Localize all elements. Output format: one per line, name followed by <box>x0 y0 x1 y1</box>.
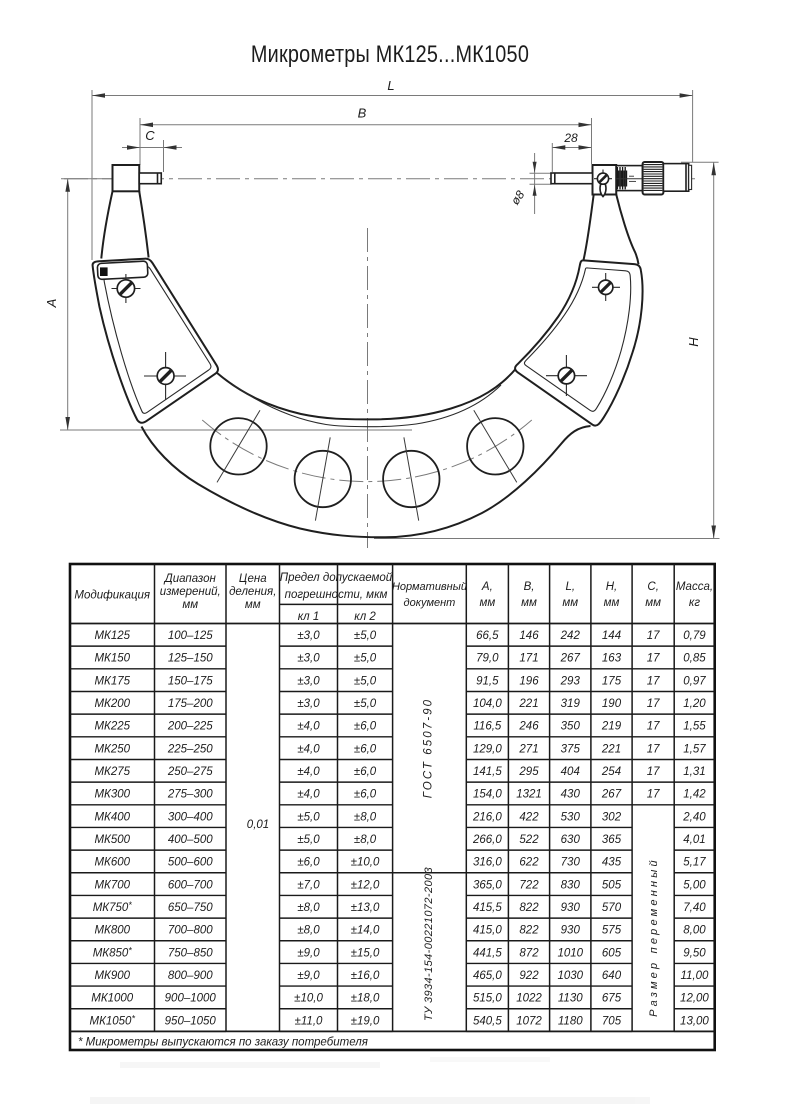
svg-text:МК600: МК600 <box>94 857 130 869</box>
svg-text:293: 293 <box>560 675 581 687</box>
svg-text:930: 930 <box>561 902 581 914</box>
svg-text:5,00: 5,00 <box>683 879 706 891</box>
svg-text:435: 435 <box>602 857 622 869</box>
svg-text:±6,0: ±6,0 <box>297 857 320 869</box>
svg-text:кг: кг <box>689 597 700 609</box>
svg-text:1,55: 1,55 <box>683 721 706 733</box>
svg-text:±6,0: ±6,0 <box>354 721 377 733</box>
svg-text:515,0: 515,0 <box>473 993 502 1005</box>
svg-text:129,0: 129,0 <box>473 743 502 755</box>
svg-text:измерений,: измерений, <box>160 586 221 598</box>
svg-text:МК275: МК275 <box>94 766 130 778</box>
svg-text:116,5: 116,5 <box>473 721 502 733</box>
svg-text:1,57: 1,57 <box>683 743 706 755</box>
svg-text:302: 302 <box>602 811 622 823</box>
svg-text:430: 430 <box>561 789 581 801</box>
svg-text:L: L <box>387 78 394 93</box>
svg-text:822: 822 <box>519 925 539 937</box>
svg-text:±5,0: ±5,0 <box>297 834 320 846</box>
svg-text:Нормативный: Нормативный <box>392 581 467 593</box>
svg-text:МК125: МК125 <box>94 630 130 642</box>
svg-text:225–250: 225–250 <box>167 743 213 755</box>
svg-text:17: 17 <box>647 698 660 710</box>
svg-text:100–125: 100–125 <box>168 630 213 642</box>
svg-text:622: 622 <box>519 857 539 869</box>
svg-text:1,20: 1,20 <box>683 698 706 710</box>
svg-text:L,: L, <box>565 581 575 593</box>
svg-text:±4,0: ±4,0 <box>297 766 320 778</box>
svg-text:±5,0: ±5,0 <box>354 630 377 642</box>
svg-text:415,5: 415,5 <box>473 902 502 914</box>
svg-text:500–600: 500–600 <box>168 857 213 869</box>
svg-text:±6,0: ±6,0 <box>354 766 377 778</box>
svg-text:МК225: МК225 <box>94 721 130 733</box>
svg-text:мм: мм <box>521 597 537 609</box>
svg-text:17: 17 <box>647 721 660 733</box>
svg-text:±3,0: ±3,0 <box>297 698 320 710</box>
svg-text:540,5: 540,5 <box>473 1015 502 1027</box>
svg-text:±12,0: ±12,0 <box>351 879 380 891</box>
svg-text:700–800: 700–800 <box>168 925 213 937</box>
svg-text:242: 242 <box>560 630 581 642</box>
svg-text:A: A <box>44 299 59 309</box>
svg-text:154,0: 154,0 <box>473 789 502 801</box>
svg-text:275–300: 275–300 <box>167 789 213 801</box>
svg-text:316,0: 316,0 <box>473 857 502 869</box>
svg-text:деления,: деления, <box>229 586 276 598</box>
svg-text:319: 319 <box>561 698 581 710</box>
svg-text:1,42: 1,42 <box>683 789 706 801</box>
svg-text:H: H <box>686 337 701 347</box>
svg-text:150–175: 150–175 <box>168 675 213 687</box>
svg-text:640: 640 <box>602 970 622 982</box>
svg-text:922: 922 <box>519 970 539 982</box>
svg-text:17: 17 <box>647 789 660 801</box>
svg-text:мм: мм <box>645 597 661 609</box>
svg-text:872: 872 <box>519 947 539 959</box>
svg-text:271: 271 <box>518 743 538 755</box>
svg-text:254: 254 <box>601 766 621 778</box>
svg-text:Предел допускаемой: Предел допускаемой <box>280 572 393 584</box>
svg-text:17: 17 <box>647 766 660 778</box>
svg-text:7,40: 7,40 <box>683 902 706 914</box>
svg-text:±8,0: ±8,0 <box>354 834 377 846</box>
svg-text:730: 730 <box>561 857 581 869</box>
svg-text:±11,0: ±11,0 <box>295 1015 323 1027</box>
svg-text:±16,0: ±16,0 <box>351 970 380 982</box>
svg-text:1321: 1321 <box>516 789 542 801</box>
svg-text:МК175: МК175 <box>94 675 130 687</box>
svg-text:422: 422 <box>519 811 539 823</box>
svg-text:ТУ 3934-154-00221072-2003: ТУ 3934-154-00221072-2003 <box>423 867 435 1022</box>
svg-text:±6,0: ±6,0 <box>354 789 377 801</box>
svg-text:C: C <box>145 128 155 143</box>
svg-text:±3,0: ±3,0 <box>297 653 320 665</box>
svg-text:465,0: 465,0 <box>473 970 502 982</box>
svg-text:950–1050: 950–1050 <box>165 1015 217 1027</box>
svg-text:8,00: 8,00 <box>683 925 706 937</box>
svg-text:295: 295 <box>518 766 539 778</box>
svg-text:±19,0: ±19,0 <box>351 1015 380 1027</box>
svg-text:±8,0: ±8,0 <box>297 902 320 914</box>
svg-text:МК200: МК200 <box>94 698 130 710</box>
svg-text:МК1050*: МК1050* <box>90 1013 136 1027</box>
svg-text:0,01: 0,01 <box>247 819 269 831</box>
svg-text:190: 190 <box>602 698 622 710</box>
svg-text:1180: 1180 <box>558 1015 583 1027</box>
svg-text:216,0: 216,0 <box>472 811 502 823</box>
svg-text:Размер переменный: Размер переменный <box>648 857 660 1017</box>
svg-text:А,: А, <box>481 581 493 593</box>
svg-text:17: 17 <box>647 675 660 687</box>
svg-text:441,5: 441,5 <box>473 947 502 959</box>
svg-text:246: 246 <box>518 721 539 733</box>
svg-text:28: 28 <box>563 131 578 145</box>
svg-text:11,00: 11,00 <box>680 970 709 982</box>
svg-text:300–400: 300–400 <box>168 811 213 823</box>
svg-text:±4,0: ±4,0 <box>297 721 320 733</box>
svg-text:17: 17 <box>647 743 660 755</box>
svg-text:175–200: 175–200 <box>168 698 213 710</box>
svg-text:±4,0: ±4,0 <box>297 743 320 755</box>
svg-text:5,17: 5,17 <box>683 857 706 869</box>
svg-text:МК250: МК250 <box>94 743 130 755</box>
svg-text:ГОСТ 6507-90: ГОСТ 6507-90 <box>423 698 435 798</box>
svg-text:±4,0: ±4,0 <box>297 789 320 801</box>
svg-text:±7,0: ±7,0 <box>297 879 320 891</box>
svg-text:мм: мм <box>562 597 578 609</box>
svg-text:530: 530 <box>561 811 581 823</box>
svg-text:104,0: 104,0 <box>473 698 502 710</box>
svg-text:±5,0: ±5,0 <box>354 675 377 687</box>
svg-text:кл 1: кл 1 <box>298 611 320 623</box>
svg-text:605: 605 <box>602 947 622 959</box>
svg-text:163: 163 <box>602 653 622 665</box>
svg-text:МК1000: МК1000 <box>91 993 134 1005</box>
svg-text:МК500: МК500 <box>94 834 130 846</box>
svg-text:400–500: 400–500 <box>168 834 213 846</box>
svg-text:документ: документ <box>404 597 456 609</box>
svg-text:B: B <box>358 106 367 121</box>
svg-text:Цена: Цена <box>239 573 267 585</box>
svg-text:822: 822 <box>519 902 539 914</box>
svg-text:±14,0: ±14,0 <box>351 925 380 937</box>
svg-text:79,0: 79,0 <box>476 653 499 665</box>
svg-text:350: 350 <box>561 721 581 733</box>
svg-text:175: 175 <box>602 675 622 687</box>
svg-text:221: 221 <box>601 743 621 755</box>
svg-text:МК400: МК400 <box>94 811 130 823</box>
svg-text:404: 404 <box>561 766 580 778</box>
svg-text:±5,0: ±5,0 <box>297 811 320 823</box>
svg-text:171: 171 <box>519 653 538 665</box>
svg-text:1022: 1022 <box>516 993 542 1005</box>
svg-text:0,97: 0,97 <box>683 675 706 687</box>
svg-text:365,0: 365,0 <box>473 879 502 891</box>
svg-text:250–275: 250–275 <box>167 766 213 778</box>
svg-text:675: 675 <box>602 993 622 1005</box>
svg-text:570: 570 <box>602 902 622 914</box>
svg-text:2,40: 2,40 <box>682 811 706 823</box>
svg-text:375: 375 <box>561 743 581 755</box>
svg-text:146: 146 <box>519 630 539 642</box>
svg-text:522: 522 <box>519 834 539 846</box>
svg-text:погрешности, мкм: погрешности, мкм <box>285 589 388 601</box>
svg-text:±9,0: ±9,0 <box>297 947 320 959</box>
svg-text:267: 267 <box>601 789 622 801</box>
svg-text:66,5: 66,5 <box>476 630 499 642</box>
svg-text:МК300: МК300 <box>94 789 130 801</box>
svg-text:1,31: 1,31 <box>683 766 705 778</box>
svg-text:17: 17 <box>647 630 660 642</box>
svg-text:267: 267 <box>560 653 581 665</box>
svg-text:575: 575 <box>602 925 622 937</box>
svg-text:МК750*: МК750* <box>93 900 133 914</box>
svg-text:ø8: ø8 <box>508 188 528 208</box>
svg-text:±8,0: ±8,0 <box>297 925 320 937</box>
svg-text:±5,0: ±5,0 <box>354 653 377 665</box>
svg-text:Модификация: Модификация <box>74 590 150 602</box>
svg-text:МК150: МК150 <box>94 653 130 665</box>
svg-text:750–850: 750–850 <box>168 947 213 959</box>
svg-text:125–150: 125–150 <box>168 653 213 665</box>
svg-text:МК850*: МК850* <box>93 945 133 959</box>
svg-text:1072: 1072 <box>516 1015 542 1027</box>
svg-text:Масса,: Масса, <box>676 581 713 593</box>
svg-text:1010: 1010 <box>557 947 583 959</box>
svg-text:В,: В, <box>524 581 535 593</box>
svg-text:219: 219 <box>601 721 622 733</box>
svg-text:17: 17 <box>647 653 660 665</box>
svg-text:мм: мм <box>604 597 620 609</box>
svg-text:415,0: 415,0 <box>473 925 502 937</box>
svg-text:±15,0: ±15,0 <box>351 947 380 959</box>
svg-text:±13,0: ±13,0 <box>351 902 380 914</box>
svg-text:кл 2: кл 2 <box>354 611 376 623</box>
svg-text:800–900: 800–900 <box>168 970 213 982</box>
svg-text:930: 930 <box>561 925 581 937</box>
svg-text:±10,0: ±10,0 <box>294 993 323 1005</box>
svg-text:91,5: 91,5 <box>476 675 499 687</box>
svg-text:144: 144 <box>602 630 621 642</box>
svg-text:мм: мм <box>479 597 495 609</box>
svg-text:Диапазон: Диапазон <box>163 573 217 585</box>
svg-text:МК900: МК900 <box>94 970 130 982</box>
svg-text:0,85: 0,85 <box>683 653 706 665</box>
svg-text:630: 630 <box>561 834 581 846</box>
svg-text:200–225: 200–225 <box>167 721 213 733</box>
svg-text:722: 722 <box>519 879 539 891</box>
svg-text:266,0: 266,0 <box>472 834 502 846</box>
svg-text:9,50: 9,50 <box>683 947 706 959</box>
svg-text:4,01: 4,01 <box>683 834 705 846</box>
svg-text:мм: мм <box>182 599 198 611</box>
svg-text:Н,: Н, <box>606 581 618 593</box>
svg-text:1030: 1030 <box>557 970 583 982</box>
svg-text:505: 505 <box>602 879 622 891</box>
svg-text:12,00: 12,00 <box>680 993 709 1005</box>
svg-text:±6,0: ±6,0 <box>354 743 377 755</box>
svg-text:мм: мм <box>245 599 261 611</box>
svg-text:221: 221 <box>518 698 538 710</box>
svg-text:±10,0: ±10,0 <box>351 857 380 869</box>
svg-text:365: 365 <box>602 834 622 846</box>
svg-text:196: 196 <box>519 675 539 687</box>
svg-text:±3,0: ±3,0 <box>297 630 320 642</box>
svg-text:141,5: 141,5 <box>473 766 502 778</box>
svg-text:830: 830 <box>561 879 581 891</box>
svg-text:±18,0: ±18,0 <box>351 993 380 1005</box>
svg-text:0,79: 0,79 <box>683 630 706 642</box>
svg-text:±3,0: ±3,0 <box>297 675 320 687</box>
svg-text:±5,0: ±5,0 <box>354 698 377 710</box>
svg-text:±9,0: ±9,0 <box>297 970 320 982</box>
svg-text:13,00: 13,00 <box>680 1015 709 1027</box>
svg-text:Микрометры МК125...МК1050: Микрометры МК125...МК1050 <box>251 40 529 67</box>
svg-text:650–750: 650–750 <box>168 902 213 914</box>
svg-text:С,: С, <box>647 581 659 593</box>
svg-text:900–1000: 900–1000 <box>165 993 217 1005</box>
svg-text:1130: 1130 <box>558 993 583 1005</box>
svg-text:МК800: МК800 <box>94 925 130 937</box>
svg-text:* Микрометры выпускаются по за: * Микрометры выпускаются по заказу потре… <box>78 1037 368 1049</box>
svg-text:±8,0: ±8,0 <box>354 811 377 823</box>
svg-text:705: 705 <box>602 1015 622 1027</box>
svg-text:МК700: МК700 <box>94 879 130 891</box>
svg-text:600–700: 600–700 <box>168 879 213 891</box>
